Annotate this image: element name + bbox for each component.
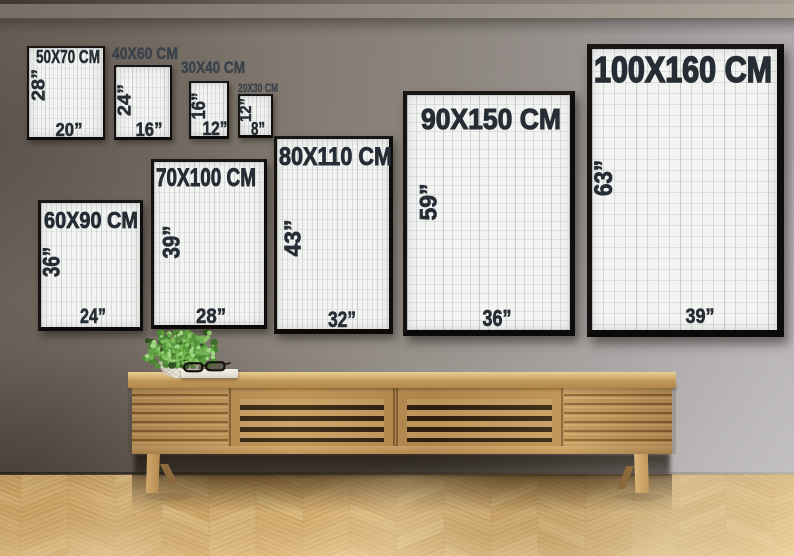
svg-text:12”: 12”	[203, 119, 228, 140]
svg-text:43”: 43”	[279, 220, 305, 257]
svg-text:16”: 16”	[136, 120, 163, 141]
svg-text:36”: 36”	[39, 247, 66, 277]
svg-text:30X40 CM: 30X40 CM	[181, 58, 245, 77]
svg-text:28”: 28”	[28, 69, 48, 101]
svg-text:20X30 CM: 20X30 CM	[238, 81, 278, 95]
svg-text:50X70 CM: 50X70 CM	[36, 47, 100, 67]
svg-text:90X150 CM: 90X150 CM	[421, 104, 561, 136]
svg-text:100X160 CM: 100X160 CM	[594, 49, 772, 90]
svg-text:40X60 CM: 40X60 CM	[112, 44, 178, 63]
svg-text:36”: 36”	[483, 305, 512, 331]
svg-text:70X100 CM: 70X100 CM	[156, 164, 256, 192]
svg-text:39”: 39”	[159, 226, 186, 259]
svg-text:24”: 24”	[80, 305, 106, 328]
svg-text:80X110 CM: 80X110 CM	[279, 143, 392, 171]
svg-text:16”: 16”	[189, 93, 210, 120]
svg-text:32”: 32”	[328, 307, 356, 332]
svg-text:12”: 12”	[236, 98, 255, 122]
svg-text:39”: 39”	[686, 305, 715, 328]
svg-text:20”: 20”	[56, 120, 83, 140]
svg-text:60X90 CM: 60X90 CM	[44, 207, 138, 233]
svg-text:28”: 28”	[196, 305, 226, 328]
svg-text:59”: 59”	[416, 184, 443, 221]
svg-text:24”: 24”	[114, 84, 134, 116]
svg-text:63”: 63”	[590, 160, 618, 196]
